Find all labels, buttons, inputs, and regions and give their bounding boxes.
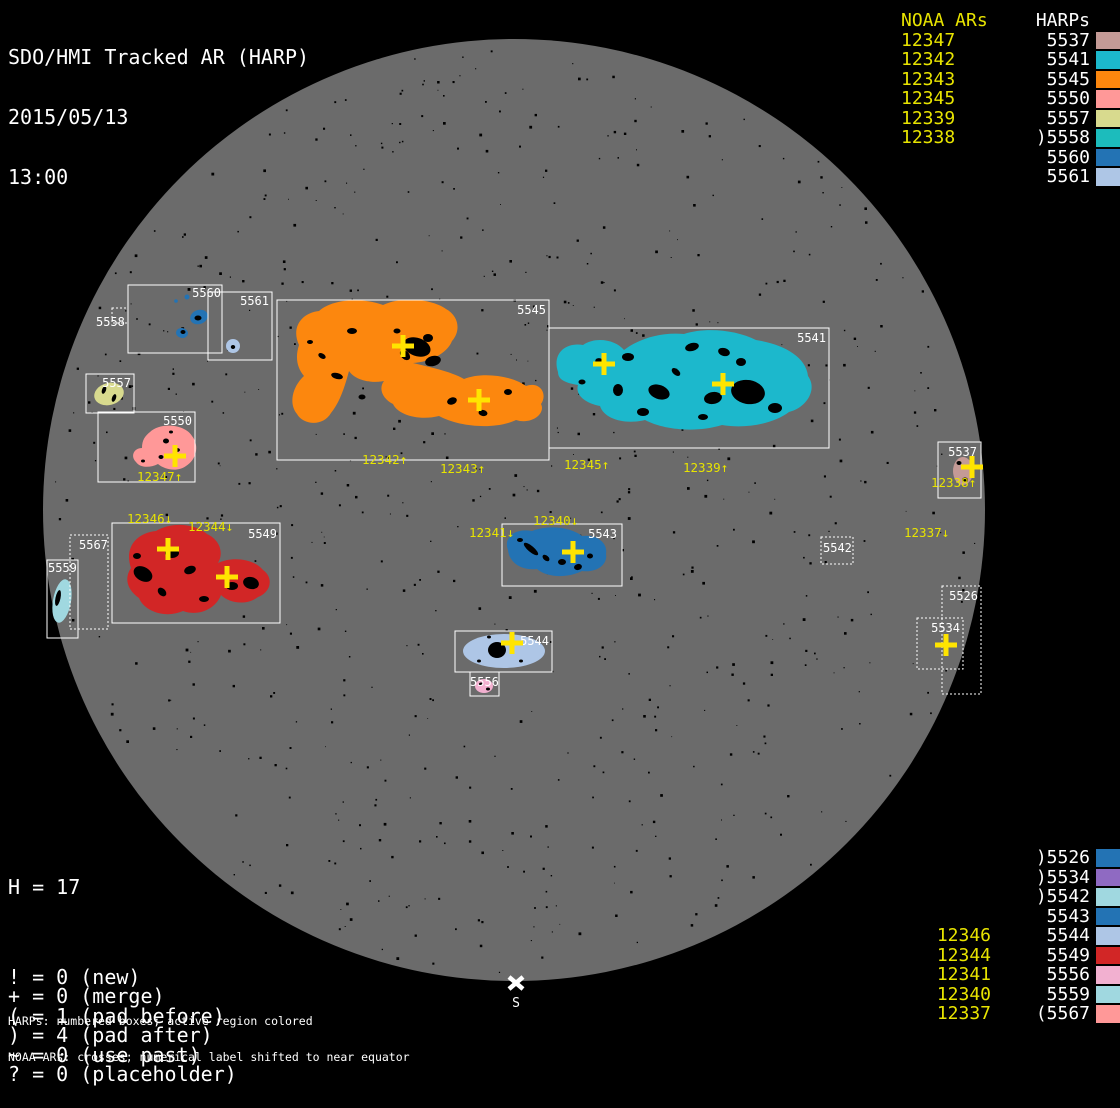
harp-number: 5549 <box>991 946 1090 966</box>
harp-box-label: 5534 <box>931 621 960 635</box>
harp-box-label: 5567 <box>79 538 108 552</box>
harp-number: 5543 <box>991 907 1090 927</box>
legend-row: 123445549 <box>901 946 1120 966</box>
observation-time: 13:00 <box>8 167 309 187</box>
noaa-ar-label: 12337↓ <box>904 525 949 540</box>
noaa-ar-label: 12344↓ <box>188 519 233 534</box>
harp-color-swatch <box>1096 90 1120 108</box>
harp-number: 5537 <box>991 31 1090 51</box>
noaa-ar-number: 12345 <box>901 89 991 109</box>
swatch-spacer <box>1096 12 1120 30</box>
legend-row: 123475537 <box>901 31 1120 51</box>
harp-box-label: 5526 <box>949 589 978 603</box>
harp-box-label: 5559 <box>48 561 77 575</box>
harp-number: (5567 <box>991 1004 1090 1024</box>
legend-row: 123435545 <box>901 70 1120 90</box>
noaa-ar-label: 12339↑ <box>683 460 728 475</box>
harp-color-swatch <box>1096 966 1120 984</box>
harp-box-label: 5545 <box>517 303 546 317</box>
harp-number: )5542 <box>991 887 1090 907</box>
legend-row: 5543 <box>901 907 1120 927</box>
noaa-ar-number: 12346 <box>901 926 991 946</box>
noaa-ar-label: 12346↓ <box>127 511 172 526</box>
footnote-noaa: NOAA ARs: crosses; numerical label shift… <box>8 1051 410 1063</box>
legend-row: 5561 <box>901 167 1120 187</box>
south-pole-label: S <box>512 996 520 1011</box>
noaa-ar-number: 12342 <box>901 50 991 70</box>
harp-number: 5545 <box>991 70 1090 90</box>
harp-color-swatch <box>1096 927 1120 945</box>
noaa-ar-number: 12343 <box>901 70 991 90</box>
harp-color-swatch <box>1096 71 1120 89</box>
legend-row: 123455550 <box>901 89 1120 109</box>
noaa-ar-label: 12345↑ <box>564 457 609 472</box>
legend-top-rows: 1234755371234255411234355451234555501233… <box>901 31 1120 187</box>
noaa-ar-number: 12337 <box>901 1004 991 1024</box>
noaa-ar-number: 12340 <box>901 985 991 1005</box>
harp-number: 5541 <box>991 50 1090 70</box>
legend-row: 123395557 <box>901 109 1120 129</box>
noaa-ar-label: 12338↑ <box>931 475 976 490</box>
harp-color-swatch <box>1096 869 1120 887</box>
legend-top: NOAA ARs HARPs 1234755371234255411234355… <box>901 11 1120 187</box>
harp-color-swatch <box>1096 1005 1120 1023</box>
harp-color-swatch <box>1096 849 1120 867</box>
noaa-ar-label: 12341↓ <box>469 525 514 540</box>
harp-box-label: 5549 <box>248 527 277 541</box>
harp-box-label: 5541 <box>797 331 826 345</box>
noaa-ar-label: 12343↑ <box>440 461 485 476</box>
legend-row: 5560 <box>901 148 1120 168</box>
harp-color-swatch <box>1096 986 1120 1004</box>
harp-box-label: 5550 <box>163 414 192 428</box>
harp-number: )5558 <box>991 128 1090 148</box>
harp-number: )5526 <box>991 848 1090 868</box>
legend-row: )5526 <box>901 848 1120 868</box>
noaa-ar-number: 12344 <box>901 946 991 966</box>
noaa-ars-header: NOAA ARs <box>901 11 991 31</box>
harp-color-swatch <box>1096 129 1120 147</box>
noaa-ar-number: 12347 <box>901 31 991 51</box>
harp-box-label: 5544 <box>520 634 549 648</box>
harp-color-swatch <box>1096 908 1120 926</box>
title-block: SDO/HMI Tracked AR (HARP) 2015/05/13 13:… <box>8 7 309 207</box>
observation-date: 2015/05/13 <box>8 107 309 127</box>
harp-region-5561 <box>226 339 240 353</box>
legend-row: )5542 <box>901 887 1120 907</box>
legend-row: 123415556 <box>901 965 1120 985</box>
legend-bottom: )5526)5534)55425543123465544123445549123… <box>901 848 1120 1024</box>
noaa-ar-number: 12341 <box>901 965 991 985</box>
harp-box-label: 5560 <box>192 286 221 300</box>
harp-box-label: 5561 <box>240 294 269 308</box>
app-title: SDO/HMI Tracked AR (HARP) <box>8 47 309 67</box>
legend-bottom-rows: )5526)5534)55425543123465544123445549123… <box>901 848 1120 1024</box>
harp-count: H = 17 <box>8 877 237 897</box>
harps-header: HARPs <box>991 11 1090 31</box>
harp-number: 5550 <box>991 89 1090 109</box>
harp-number: 5559 <box>991 985 1090 1005</box>
harp-box-label: 5543 <box>588 527 617 541</box>
noaa-ar-label: 12347↑ <box>137 469 182 484</box>
footnote-harps: HARPs: numbered boxes; active region col… <box>8 1015 410 1027</box>
harp-box-label: 5557 <box>102 376 131 390</box>
harp-box-label: 5556 <box>470 675 499 689</box>
harp-number: )5534 <box>991 868 1090 888</box>
harp-color-swatch <box>1096 149 1120 167</box>
harp-color-swatch <box>1096 110 1120 128</box>
legend-row: 12338)5558 <box>901 128 1120 148</box>
harp-color-swatch <box>1096 32 1120 50</box>
harp-number: 5560 <box>991 148 1090 168</box>
legend-row: )5534 <box>901 868 1120 888</box>
legend-row: 123405559 <box>901 985 1120 1005</box>
harp-number: 5544 <box>991 926 1090 946</box>
harp-number: 5556 <box>991 965 1090 985</box>
harp-color-swatch <box>1096 888 1120 906</box>
harp-box-label: 5542 <box>823 541 852 555</box>
legend-row: 12337(5567 <box>901 1004 1120 1024</box>
noaa-ar-label: 12340↓ <box>533 513 578 528</box>
noaa-ar-label: 12342↑ <box>362 452 407 467</box>
harp-color-swatch <box>1096 947 1120 965</box>
harp-box-label: 5558 <box>96 315 125 329</box>
noaa-ar-number: 12339 <box>901 109 991 129</box>
harp-color-swatch <box>1096 51 1120 69</box>
legend-row: 123425541 <box>901 50 1120 70</box>
harp-color-swatch <box>1096 168 1120 186</box>
noaa-ar-number: 12338 <box>901 128 991 148</box>
legend-row: 123465544 <box>901 926 1120 946</box>
harp-number: 5561 <box>991 167 1090 187</box>
harp-number: 5557 <box>991 109 1090 129</box>
footnotes: HARPs: numbered boxes; active region col… <box>8 991 410 1075</box>
